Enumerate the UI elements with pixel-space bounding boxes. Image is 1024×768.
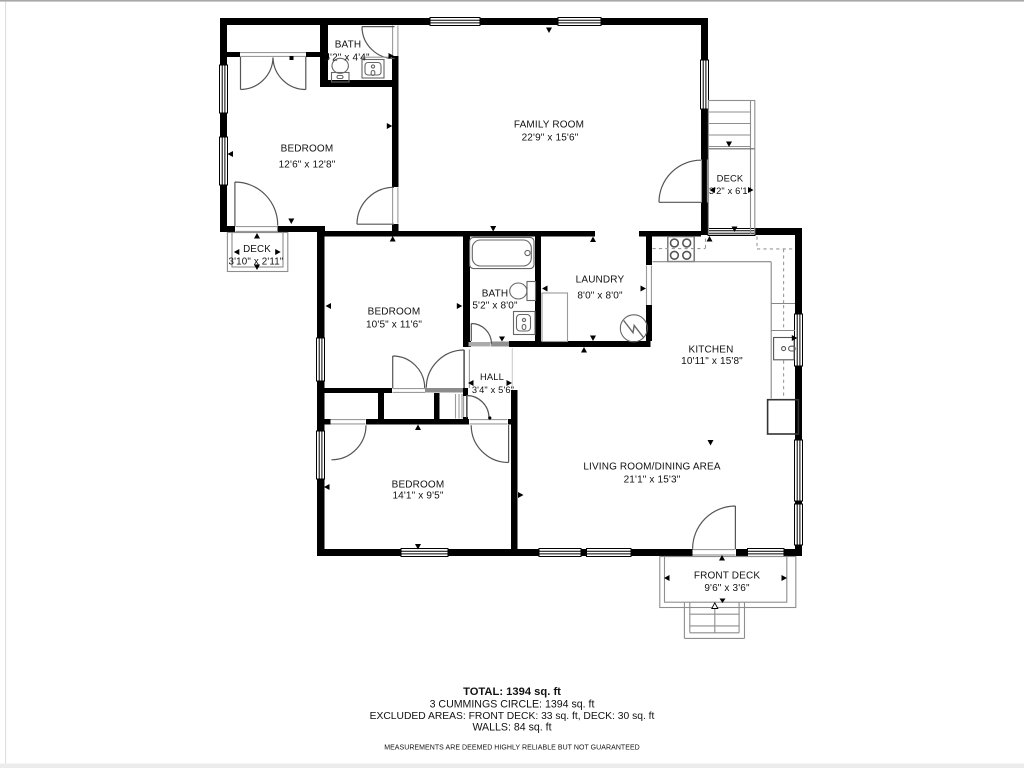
svg-text:EXCLUDED AREAS: FRONT DECK: 33: EXCLUDED AREAS: FRONT DECK: 33 sq. ft, D… (370, 711, 655, 722)
svg-text:3 CUMMINGS CIRCLE: 1394 sq. ft: 3 CUMMINGS CIRCLE: 1394 sq. ft (430, 699, 595, 711)
svg-text:KITCHEN: KITCHEN (689, 345, 734, 356)
svg-text:TOTAL: 1394 sq. ft: TOTAL: 1394 sq. ft (463, 686, 561, 698)
svg-text:5'2" x 4'4": 5'2" x 4'4" (324, 53, 370, 64)
svg-text:BEDROOM: BEDROOM (281, 144, 334, 155)
svg-text:FAMILY ROOM: FAMILY ROOM (514, 120, 584, 131)
svg-text:BATH: BATH (482, 289, 509, 300)
svg-text:LAUNDRY: LAUNDRY (576, 275, 625, 286)
svg-text:FRONT DECK: FRONT DECK (694, 571, 760, 582)
svg-text:3'4" x 5'6": 3'4" x 5'6" (472, 385, 514, 395)
svg-text:9'6" x 3'6": 9'6" x 3'6" (704, 583, 750, 594)
svg-text:DECK: DECK (243, 244, 271, 255)
svg-text:8'0" x 8'0": 8'0" x 8'0" (577, 291, 623, 302)
svg-text:22'9" x 15'6": 22'9" x 15'6" (522, 133, 579, 144)
svg-text:MEASUREMENTS ARE DEEMED HIGHLY: MEASUREMENTS ARE DEEMED HIGHLY RELIABLE … (384, 745, 640, 752)
svg-text:BEDROOM: BEDROOM (392, 480, 445, 491)
svg-text:HALL: HALL (480, 371, 504, 382)
svg-text:DECK: DECK (717, 173, 744, 184)
svg-text:BATH: BATH (335, 40, 362, 51)
svg-text:WALLS: 84 sq. ft: WALLS: 84 sq. ft (472, 722, 551, 734)
svg-text:10'11" x 15'8": 10'11" x 15'8" (681, 356, 743, 367)
svg-text:5'2" x 8'0": 5'2" x 8'0" (472, 301, 518, 312)
svg-text:10'5" x 11'6": 10'5" x 11'6" (366, 320, 422, 331)
svg-text:14'1" x 9'5": 14'1" x 9'5" (392, 491, 443, 502)
svg-text:12'6" x 12'8": 12'6" x 12'8" (279, 160, 336, 171)
svg-text:LIVING ROOM/DINING AREA: LIVING ROOM/DINING AREA (583, 462, 721, 473)
svg-text:3'2" x 6'1": 3'2" x 6'1" (709, 186, 751, 196)
svg-text:BEDROOM: BEDROOM (368, 307, 421, 318)
svg-text:21'1" x 15'3": 21'1" x 15'3" (624, 475, 681, 486)
